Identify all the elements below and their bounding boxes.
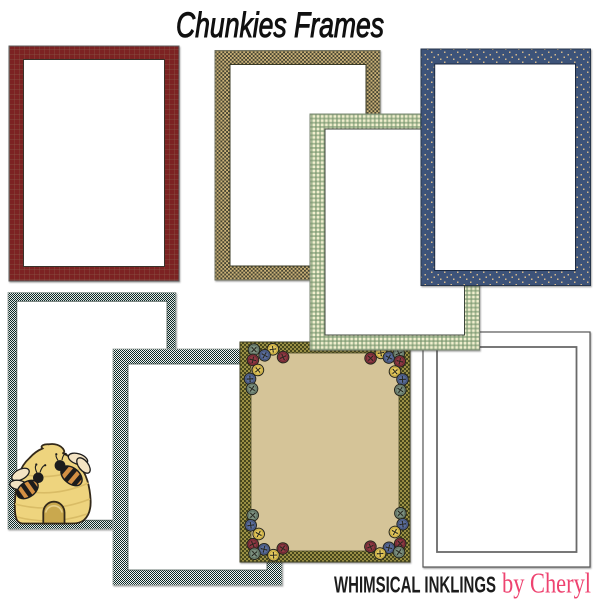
svg-text:Chunkies Frames: Chunkies Frames	[176, 6, 384, 45]
svg-text:by Cheryl: by Cheryl	[502, 568, 591, 600]
svg-text:WHIMSICAL INKLINGS: WHIMSICAL INKLINGS	[334, 572, 496, 598]
